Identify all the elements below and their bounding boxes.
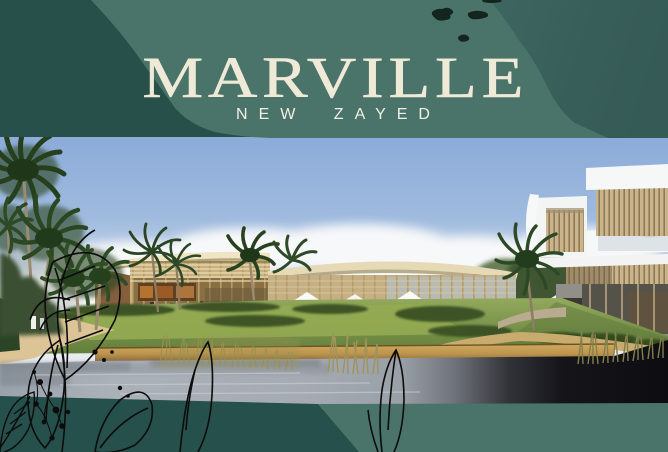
svg-text:NEW ZAYED: NEW ZAYED	[236, 106, 441, 123]
svg-text:MARVILLE: MARVILLE	[142, 45, 528, 110]
